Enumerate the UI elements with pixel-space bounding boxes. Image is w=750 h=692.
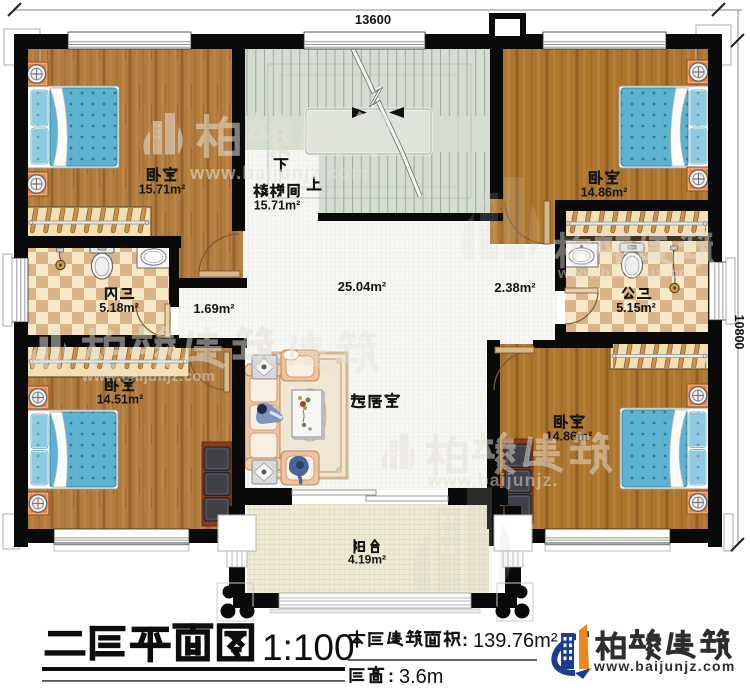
svg-text:13600: 13600: [355, 12, 391, 27]
svg-text:10800: 10800: [732, 315, 746, 350]
svg-text:www.baijunjz.: www.baijunjz.: [427, 470, 559, 490]
svg-text:15.71m²: 15.71m²: [139, 183, 186, 197]
svg-text:1:100: 1:100: [262, 627, 355, 668]
svg-text:14.86m²: 14.86m²: [581, 186, 628, 200]
svg-text:5.18m²: 5.18m²: [99, 301, 139, 315]
svg-text::: :: [462, 630, 468, 650]
svg-text:15.71m²: 15.71m²: [254, 199, 301, 213]
svg-text:www.baijunjz.com: www.baijunjz.com: [189, 162, 369, 183]
svg-text:www.baijunjz.co: www.baijunjz.co: [557, 265, 689, 282]
svg-text:5.15m²: 5.15m²: [616, 301, 656, 315]
svg-text:www.baijunjz.com: www.baijunjz.com: [81, 369, 215, 385]
svg-text:1.69m²: 1.69m²: [193, 301, 235, 316]
svg-text:4.19m²: 4.19m²: [348, 553, 386, 567]
svg-text:3.6m: 3.6m: [399, 666, 443, 688]
svg-text:25.04m²: 25.04m²: [338, 279, 387, 294]
svg-text:139.76m²: 139.76m²: [473, 630, 558, 652]
svg-text:2.38m²: 2.38m²: [494, 280, 536, 295]
svg-text:14.51m²: 14.51m²: [97, 393, 144, 407]
svg-text::: :: [388, 666, 394, 686]
svg-text:www.baijunjz.com: www.baijunjz.com: [593, 658, 736, 674]
